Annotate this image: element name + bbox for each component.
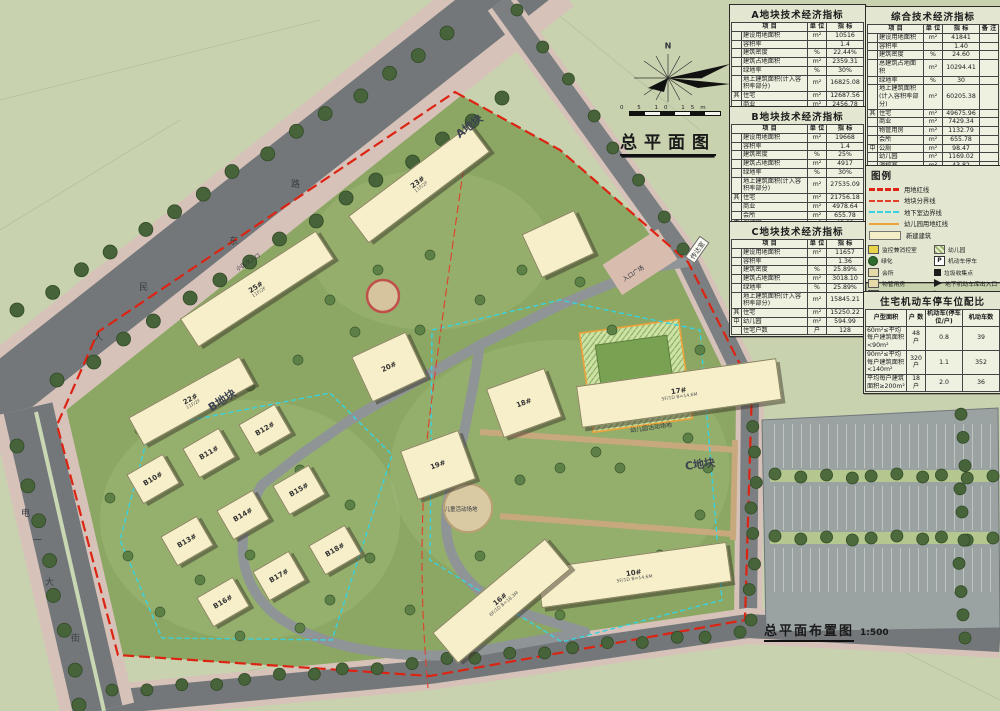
table-cell: 655.78 bbox=[827, 211, 864, 220]
scale-bar: 0 5 10 15m bbox=[620, 105, 730, 116]
legend-line-item: 用地红线 bbox=[869, 185, 997, 194]
table-header-cell: 单 位 bbox=[808, 23, 827, 32]
tree-icon bbox=[406, 658, 418, 670]
table-row: 会所m²655.78 bbox=[732, 211, 864, 220]
parking-table: 户型面积户 数机动车(停车位/户)机动车数60m²≤平均每户建筑面积<90m²4… bbox=[865, 309, 1000, 392]
tree-icon bbox=[155, 607, 165, 617]
table-cell bbox=[732, 31, 742, 40]
table-header-cell: 备 注 bbox=[980, 25, 999, 34]
table-cell: m² bbox=[924, 109, 943, 118]
legend-label: 地块分界线 bbox=[904, 196, 935, 205]
box-tan-icon bbox=[868, 268, 879, 277]
table-row: 地上建筑面积(计入容积率部分)m²16825.08 bbox=[732, 75, 864, 92]
tree-icon bbox=[734, 626, 746, 638]
tree-icon bbox=[383, 66, 397, 80]
table-cell: 1169.02 bbox=[943, 153, 980, 162]
tree-icon bbox=[309, 214, 323, 228]
table-cell: 10294.41 bbox=[943, 60, 980, 77]
table-comprehensive-title: 综合技术经济指标 bbox=[867, 9, 999, 23]
table-row: 商业m²7429.34 bbox=[868, 118, 999, 127]
tree-icon bbox=[176, 679, 188, 691]
tree-icon bbox=[318, 107, 332, 121]
tree-icon bbox=[745, 614, 757, 626]
legend-item: 垃圾收集点 bbox=[934, 268, 998, 277]
table-cell: 21756.18 bbox=[827, 194, 864, 203]
tree-icon bbox=[289, 124, 303, 138]
table-cell bbox=[732, 211, 742, 220]
table-cell: m² bbox=[808, 75, 827, 92]
tree-icon bbox=[345, 500, 355, 510]
legend-label: 新建建筑 bbox=[906, 231, 931, 240]
tree-icon bbox=[354, 89, 368, 103]
table-cell: 0.8 bbox=[926, 326, 963, 350]
table-cell bbox=[868, 33, 878, 42]
table-cell: m² bbox=[808, 58, 827, 67]
tree-icon bbox=[168, 205, 182, 219]
table-row: 会所m²655.78 bbox=[868, 135, 999, 144]
table-cell: 物管用房 bbox=[878, 127, 924, 136]
table-cell: 幼儿园 bbox=[742, 317, 808, 326]
tree-icon bbox=[769, 530, 781, 542]
table-row: 绿地率%30% bbox=[732, 168, 864, 177]
table-cell: 平均每户建筑面积≥200m² bbox=[866, 375, 907, 392]
table-header-cell: 指 标 bbox=[827, 240, 864, 249]
table-row: 其住宅m²12687.56 bbox=[732, 92, 864, 101]
building-label: B16# bbox=[212, 593, 234, 610]
building-label: B12# bbox=[254, 420, 276, 437]
table-cell: % bbox=[808, 266, 827, 275]
tree-icon bbox=[917, 533, 929, 545]
table-cell bbox=[868, 76, 878, 85]
table-cell bbox=[732, 49, 742, 58]
table-cell: m² bbox=[924, 85, 943, 109]
table-cell: 60m²≤平均每户建筑面积<90m² bbox=[866, 326, 907, 350]
legend-label: 垃圾收集点 bbox=[944, 268, 973, 277]
table-cell bbox=[732, 133, 742, 142]
table-row: 容积率1.36 bbox=[732, 257, 864, 266]
legend-label: 监控兼消控室 bbox=[882, 245, 917, 254]
building-sublabel: 5F/1D B=14.6M bbox=[616, 574, 653, 584]
building-label: B17# bbox=[268, 567, 290, 584]
tree-icon bbox=[495, 91, 509, 105]
road-name-char: 路 bbox=[291, 177, 300, 190]
map-label: 儿童活动场地 bbox=[444, 505, 477, 513]
table-cell: 24.60 bbox=[943, 51, 980, 60]
table-cell: 1.1 bbox=[926, 350, 963, 374]
table-row: 60m²≤平均每户建筑面积<90m²48 户0.839 bbox=[866, 326, 1000, 350]
tree-icon bbox=[955, 408, 967, 420]
table-cell: 绿地率 bbox=[742, 283, 808, 292]
tree-icon bbox=[537, 41, 549, 53]
table-cell bbox=[732, 142, 742, 151]
parking-table-title: 住宅机动车停车位配比 bbox=[865, 294, 1000, 308]
table-header-cell: 项 目 bbox=[732, 23, 808, 32]
table-cell bbox=[868, 118, 878, 127]
legend-title: 图例 bbox=[871, 168, 999, 182]
tree-icon bbox=[106, 684, 118, 696]
table-cell bbox=[732, 326, 742, 335]
table-header-cell: 户 数 bbox=[907, 310, 926, 327]
legend-item: 幼儿园 bbox=[934, 245, 998, 254]
table-cell: 30% bbox=[827, 168, 864, 177]
tree-icon bbox=[46, 285, 60, 299]
table-cell: 商业 bbox=[742, 202, 808, 211]
table-cell: 1.4 bbox=[827, 142, 864, 151]
table-cell: m² bbox=[924, 153, 943, 162]
tree-icon bbox=[225, 165, 239, 179]
table-cell: 容积率 bbox=[878, 42, 924, 51]
scale-bar-ticks bbox=[629, 111, 721, 116]
tree-icon bbox=[32, 514, 46, 528]
table-cell bbox=[732, 168, 742, 177]
table-cell: 4917 bbox=[827, 160, 864, 169]
table-cell: % bbox=[924, 51, 943, 60]
legend-label: 会所 bbox=[882, 268, 894, 277]
building-label: B18# bbox=[324, 541, 346, 558]
north-label: N bbox=[665, 42, 672, 51]
tree-icon bbox=[846, 534, 858, 546]
table-row: 幼儿园m²1169.02 bbox=[868, 153, 999, 162]
tree-icon bbox=[865, 532, 877, 544]
table-row: 住宅户数户128 bbox=[732, 326, 864, 335]
plot-c-table: 项 目单 位指 标建设用地面积m²11657容积率1.36建筑密度%25.89%… bbox=[731, 239, 864, 335]
tree-icon bbox=[239, 673, 251, 685]
table-cell: 98.47 bbox=[943, 144, 980, 153]
table-row: 建筑占地面积m²3018.10 bbox=[732, 275, 864, 284]
tree-icon bbox=[72, 698, 86, 711]
table-cell: 绿地率 bbox=[878, 76, 924, 85]
tree-icon bbox=[339, 191, 353, 205]
table-cell: m² bbox=[924, 135, 943, 144]
table-cell: % bbox=[808, 49, 827, 58]
tree-icon bbox=[308, 668, 320, 680]
table-cell bbox=[732, 257, 742, 266]
road-name-char: 电 bbox=[21, 506, 30, 519]
table-cell: 2359.31 bbox=[827, 58, 864, 67]
red-thin-line-swatch bbox=[869, 200, 899, 202]
tree-icon bbox=[504, 647, 516, 659]
tree-icon bbox=[615, 463, 625, 473]
table-cell: 27535.09 bbox=[827, 177, 864, 194]
building-label: B14# bbox=[232, 506, 254, 523]
table-cell: 15845.21 bbox=[827, 292, 864, 309]
tree-icon bbox=[411, 49, 425, 63]
legend-item: 监控兼消控室 bbox=[868, 245, 932, 254]
tree-icon bbox=[511, 4, 523, 16]
table-cell bbox=[980, 109, 999, 118]
building-label: B13# bbox=[176, 532, 198, 549]
beige-line-swatch bbox=[869, 231, 901, 240]
tree-icon bbox=[336, 663, 348, 675]
legend-panel: 图例 用地红线地块分界线地下室边界线幼儿园用地红线新建建筑 监控兼消控室绿化会所… bbox=[865, 165, 1000, 283]
road-name-char: 民 bbox=[139, 280, 148, 293]
tree-icon bbox=[956, 506, 968, 518]
table-cell bbox=[732, 40, 742, 49]
table-cell: m² bbox=[808, 202, 827, 211]
building-label: 18# bbox=[515, 397, 532, 410]
legend-label: 绿化 bbox=[881, 256, 893, 265]
table-row: 总建筑占地面积m²10294.41 bbox=[868, 60, 999, 77]
table-row: 建设用地面积m²10516 bbox=[732, 31, 864, 40]
legend-label: 幼儿园用地红线 bbox=[904, 219, 948, 228]
tree-icon bbox=[959, 460, 971, 472]
table-cell bbox=[980, 85, 999, 109]
table-row: 中幼儿园m²594.99 bbox=[732, 317, 864, 326]
table-plot-b-title: B地块技术经济指标 bbox=[731, 109, 864, 123]
red-bold-line-swatch bbox=[869, 188, 899, 191]
table-cell bbox=[980, 33, 999, 42]
building-sublabel: 5F/1D B=14.6M bbox=[661, 392, 698, 402]
table-cell: 地上建筑面积(计入容积率部分) bbox=[742, 75, 808, 92]
table-cell: 建设用地面积 bbox=[742, 248, 808, 257]
table-header-cell: 机动车数 bbox=[963, 310, 1000, 327]
tree-icon bbox=[123, 551, 133, 561]
table-cell bbox=[980, 135, 999, 144]
tree-icon bbox=[475, 295, 485, 305]
table-cell bbox=[808, 257, 827, 266]
table-cell bbox=[732, 160, 742, 169]
table-row: 建筑密度%24.60 bbox=[868, 51, 999, 60]
tree-icon bbox=[105, 493, 115, 503]
table-cell: 建设用地面积 bbox=[742, 133, 808, 142]
table-cell: 352 bbox=[963, 350, 1000, 374]
tree-icon bbox=[953, 557, 965, 569]
tree-icon bbox=[373, 265, 383, 275]
tree-icon bbox=[195, 575, 205, 585]
tree-icon bbox=[295, 623, 305, 633]
tree-icon bbox=[293, 355, 303, 365]
p-sign-icon: P bbox=[934, 256, 945, 266]
table-cell: 会所 bbox=[742, 211, 808, 220]
tree-icon bbox=[369, 173, 383, 187]
tree-icon bbox=[425, 250, 435, 260]
tree-icon bbox=[955, 586, 967, 598]
table-cell: % bbox=[924, 76, 943, 85]
tree-icon bbox=[146, 314, 160, 328]
sq-black-icon bbox=[934, 269, 941, 276]
table-row: 建设用地面积m²19668 bbox=[732, 133, 864, 142]
box-hatch-icon bbox=[934, 245, 945, 254]
table-cell: 住宅 bbox=[742, 92, 808, 101]
table-cell bbox=[808, 40, 827, 49]
table-cell bbox=[808, 142, 827, 151]
tree-icon bbox=[935, 469, 947, 481]
table-cell: 公厕 bbox=[878, 144, 924, 153]
table-cell bbox=[732, 66, 742, 75]
tree-icon bbox=[846, 472, 858, 484]
table-cell: 容积率 bbox=[742, 142, 808, 151]
table-row: 地上建筑面积(计入容积率部分)m²27535.09 bbox=[732, 177, 864, 194]
table-cell: 住宅 bbox=[742, 194, 808, 203]
road-name-char: 街 bbox=[71, 631, 80, 644]
table-cell: m² bbox=[924, 144, 943, 153]
table-cell bbox=[980, 127, 999, 136]
table-cell: 建设用地面积 bbox=[878, 33, 924, 42]
tree-icon bbox=[261, 147, 275, 161]
dot-green-icon bbox=[868, 256, 878, 266]
table-cell: 建设用地面积 bbox=[742, 31, 808, 40]
tree-icon bbox=[745, 502, 757, 514]
tree-icon bbox=[211, 679, 223, 691]
table-cell: % bbox=[808, 151, 827, 160]
table-cell: 1.40 bbox=[943, 42, 980, 51]
tree-icon bbox=[954, 483, 966, 495]
legend-label: 机动车停车 bbox=[948, 256, 977, 265]
tree-icon bbox=[958, 534, 970, 546]
tree-icon bbox=[891, 530, 903, 542]
table-cell: 容积率 bbox=[742, 257, 808, 266]
table-cell: 地上建筑面积(计入容积率部分) bbox=[742, 177, 808, 194]
table-row: 地上建筑面积(计入容积率部分)m²60205.38 bbox=[868, 85, 999, 109]
table-cell: 655.78 bbox=[943, 135, 980, 144]
table-row: 物管用房m²1132.79 bbox=[868, 127, 999, 136]
table-header-cell: 指 标 bbox=[827, 23, 864, 32]
table-cell bbox=[868, 135, 878, 144]
table-cell: 中 bbox=[868, 144, 878, 153]
tree-icon bbox=[769, 468, 781, 480]
tree-icon bbox=[935, 531, 947, 543]
building-label: 19# bbox=[429, 459, 446, 472]
table-cell: 3018.10 bbox=[827, 275, 864, 284]
tree-icon bbox=[743, 584, 755, 596]
legend-label: 物管用房 bbox=[882, 279, 905, 288]
table-row: 容积率1.4 bbox=[732, 142, 864, 151]
table-cell: 22.44% bbox=[827, 49, 864, 58]
tree-icon bbox=[57, 623, 71, 637]
table-cell: 11657 bbox=[827, 248, 864, 257]
table-cell: 90m²≤平均每户建筑面积<140m² bbox=[866, 350, 907, 374]
table-row: 平均每户建筑面积≥200m²18 户2.036 bbox=[866, 375, 1000, 392]
legend-item: P机动车停车 bbox=[934, 256, 998, 266]
tree-icon bbox=[555, 463, 565, 473]
legend-item: 地下机动车库出入口 bbox=[934, 279, 998, 288]
table-cell bbox=[924, 42, 943, 51]
sheet-scale: 1:500 bbox=[860, 628, 889, 638]
table-row: 建筑密度%22.44% bbox=[732, 49, 864, 58]
tree-icon bbox=[658, 211, 670, 223]
tree-icon bbox=[46, 588, 60, 602]
table-cell: 建筑密度 bbox=[742, 266, 808, 275]
tree-icon bbox=[273, 668, 285, 680]
legend-line-item: 地下室边界线 bbox=[869, 208, 997, 217]
table-cell bbox=[732, 292, 742, 309]
box-tan-icon bbox=[868, 279, 879, 288]
table-cell bbox=[732, 58, 742, 67]
table-cell bbox=[980, 153, 999, 162]
table-parking-ratio: 住宅机动车停车位配比 户型面积户 数机动车(停车位/户)机动车数60m²≤平均每… bbox=[863, 291, 1000, 394]
table-cell bbox=[980, 144, 999, 153]
table-cell: 60205.38 bbox=[943, 85, 980, 109]
table-header-cell: 项 目 bbox=[732, 125, 808, 134]
tree-icon bbox=[10, 439, 24, 453]
tree-icon bbox=[117, 332, 131, 346]
table-header-cell: 单 位 bbox=[808, 125, 827, 134]
table-cell bbox=[732, 202, 742, 211]
table-cell: 其 bbox=[732, 309, 742, 318]
table-cell: m² bbox=[808, 177, 827, 194]
tree-icon bbox=[575, 277, 585, 287]
table-cell: 住宅户数 bbox=[742, 326, 808, 335]
table-row: 容积率1.40 bbox=[868, 42, 999, 51]
table-row: 商业m²4978.64 bbox=[732, 202, 864, 211]
tree-icon bbox=[469, 652, 481, 664]
legend-line-item: 地块分界线 bbox=[869, 196, 997, 205]
table-cell bbox=[868, 153, 878, 162]
table-header-cell: 指 标 bbox=[827, 125, 864, 134]
table-cell: 49675.96 bbox=[943, 109, 980, 118]
table-cell: 幼儿园 bbox=[878, 153, 924, 162]
tree-icon bbox=[633, 174, 645, 186]
table-cell: 41841 bbox=[943, 33, 980, 42]
table-cell bbox=[732, 275, 742, 284]
table-row: 中公厕m²98.47 bbox=[868, 144, 999, 153]
tree-icon bbox=[601, 637, 613, 649]
table-cell: 1.4 bbox=[827, 40, 864, 49]
tree-icon bbox=[747, 421, 759, 433]
legend-line-items: 用地红线地块分界线地下室边界线幼儿园用地红线新建建筑 bbox=[867, 185, 999, 240]
tree-icon bbox=[747, 528, 759, 540]
tree-icon bbox=[987, 470, 999, 482]
table-cell: 30 bbox=[943, 76, 980, 85]
table-row: 建筑占地面积m²2359.31 bbox=[732, 58, 864, 67]
tree-icon bbox=[891, 468, 903, 480]
tree-icon bbox=[821, 469, 833, 481]
table-cell: 建筑密度 bbox=[742, 49, 808, 58]
table-plot-c-indicators: C地块技术经济指标 项 目单 位指 标建设用地面积m²11657容积率1.36建… bbox=[729, 221, 866, 337]
table-cell: 10516 bbox=[827, 31, 864, 40]
table-cell: 总建筑占地面积 bbox=[878, 60, 924, 77]
orange-line-swatch bbox=[869, 223, 899, 225]
table-cell: 会所 bbox=[878, 135, 924, 144]
table-cell bbox=[732, 75, 742, 92]
table-cell: 12687.56 bbox=[827, 92, 864, 101]
legend-label: 幼儿园 bbox=[948, 245, 965, 254]
table-row: 其住宅m²15250.22 bbox=[732, 309, 864, 318]
tree-icon bbox=[21, 479, 35, 493]
tree-icon bbox=[196, 187, 210, 201]
table-cell: 2.0 bbox=[926, 375, 963, 392]
table-cell: m² bbox=[808, 31, 827, 40]
table-cell: 18 户 bbox=[907, 375, 926, 392]
table-header-cell: 指 标 bbox=[943, 25, 980, 34]
table-cell: 建筑占地面积 bbox=[742, 160, 808, 169]
table-cell bbox=[732, 177, 742, 194]
table-cell: m² bbox=[808, 92, 827, 101]
tree-icon bbox=[695, 510, 705, 520]
table-cell: m² bbox=[808, 211, 827, 220]
tree-icon bbox=[325, 595, 335, 605]
table-header-cell: 单 位 bbox=[924, 25, 943, 34]
table-cell: 1132.79 bbox=[943, 127, 980, 136]
table-plot-c-title: C地块技术经济指标 bbox=[731, 224, 864, 238]
tree-icon bbox=[749, 558, 761, 570]
tree-icon bbox=[371, 663, 383, 675]
tree-icon bbox=[636, 636, 648, 648]
table-cell: 住宅 bbox=[878, 109, 924, 118]
table-row: 地上建筑面积(计入容积率部分)m²15845.21 bbox=[732, 292, 864, 309]
table-row: 其住宅m²21756.18 bbox=[732, 194, 864, 203]
road-name-char: 大 bbox=[45, 575, 54, 588]
table-header-cell: 单 位 bbox=[808, 240, 827, 249]
tree-icon bbox=[325, 295, 335, 305]
plan-title-text: 总平面图 bbox=[620, 128, 716, 156]
table-cell bbox=[732, 151, 742, 160]
tree-icon bbox=[588, 110, 600, 122]
table-cell bbox=[980, 76, 999, 85]
sheet-title-text: 总平面布置图 bbox=[764, 624, 854, 642]
tree-icon bbox=[405, 605, 415, 615]
table-cell: 其 bbox=[732, 194, 742, 203]
